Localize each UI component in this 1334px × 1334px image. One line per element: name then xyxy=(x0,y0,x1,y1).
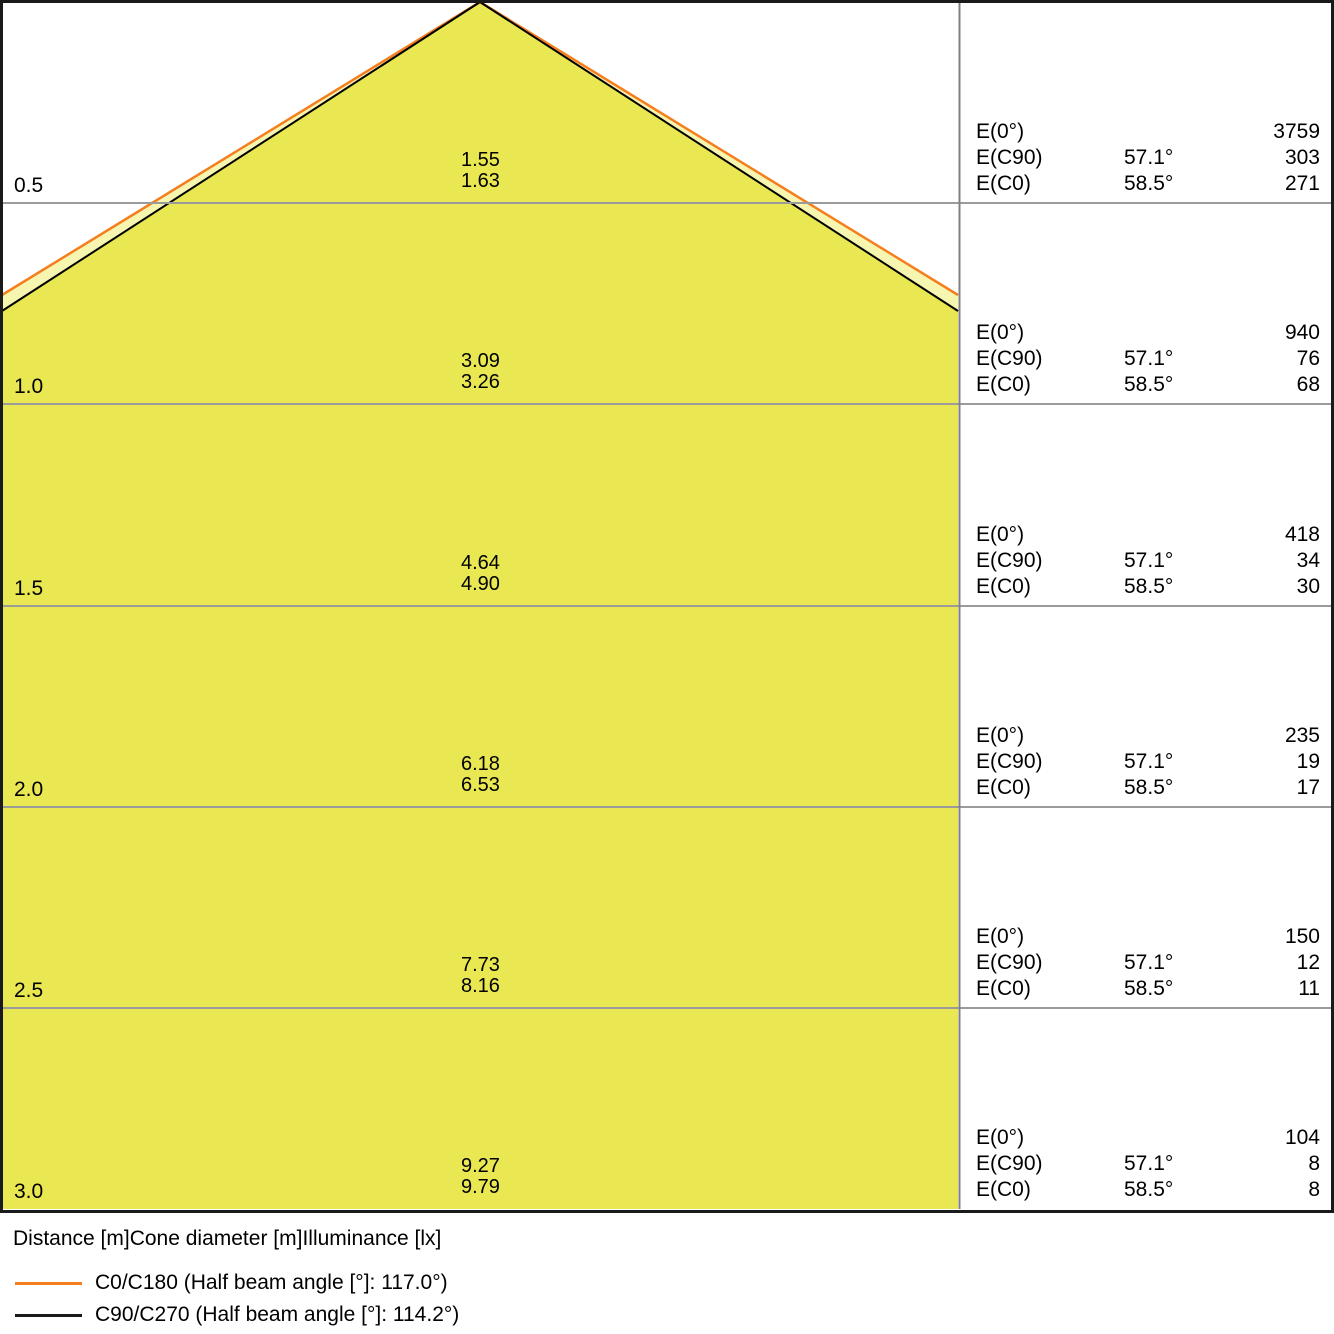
cone-diameter-labels: 9.27 9.79 xyxy=(461,1156,500,1198)
legend-label-c0-c180: C0/C180 (Half beam angle [°]: 117.0°) xyxy=(95,1270,448,1296)
ec0-label: E(C0) xyxy=(976,574,1124,600)
ec0-value: 30 xyxy=(1220,574,1320,600)
ec90-value: 76 xyxy=(1220,346,1320,372)
ec90-value: 8 xyxy=(1220,1151,1320,1177)
cone-diameter-labels: 1.55 1.63 xyxy=(461,150,500,192)
black-line-swatch-icon xyxy=(15,1314,82,1317)
e0-value: 3759 xyxy=(1220,119,1320,145)
distance-label: 2.0 xyxy=(14,777,43,803)
ec0-angle: 58.5° xyxy=(1124,976,1220,1002)
ec90-value: 19 xyxy=(1220,749,1320,775)
ec0-angle: 58.5° xyxy=(1124,372,1220,398)
distance-label: 0.5 xyxy=(14,173,43,199)
cone-diameter-c0: 4.90 xyxy=(461,574,500,595)
ec0-label: E(C0) xyxy=(976,171,1124,197)
distance-axis-label: Distance [m] xyxy=(13,1227,130,1250)
ec0-label: E(C0) xyxy=(976,372,1124,398)
legend-entry-c90-c270: C90/C270 (Half beam angle [°]: 114.2°) xyxy=(15,1302,459,1328)
ec90-value: 303 xyxy=(1220,145,1320,171)
legend-entry-c0-c180: C0/C180 (Half beam angle [°]: 117.0°) xyxy=(15,1270,448,1296)
orange-line-swatch-icon xyxy=(15,1282,82,1285)
illuminance-row: E(0°)235 E(C90)57.1°19 E(C0)58.5°17 xyxy=(976,723,1320,801)
cone-diameter-c90: 1.55 xyxy=(461,150,500,171)
ec90-angle: 57.1° xyxy=(1124,548,1220,574)
axis-labels: Distance [m]Cone diameter [m]Illuminance… xyxy=(13,1226,441,1251)
ec0-value: 11 xyxy=(1220,976,1320,1002)
e0-label: E(0°) xyxy=(976,924,1124,950)
illuminance-row: E(0°)150 E(C90)57.1°12 E(C0)58.5°11 xyxy=(976,924,1320,1002)
ec90-angle: 57.1° xyxy=(1124,1151,1220,1177)
cone-diameter-c0: 6.53 xyxy=(461,775,500,796)
legend-label-c90-c270: C90/C270 (Half beam angle [°]: 114.2°) xyxy=(95,1302,459,1328)
illuminance-row: E(0°)940 E(C90)57.1°76 E(C0)58.5°68 xyxy=(976,320,1320,398)
ec0-value: 8 xyxy=(1220,1177,1320,1203)
e0-value: 104 xyxy=(1220,1125,1320,1151)
ec90-label: E(C90) xyxy=(976,1151,1124,1177)
ec0-value: 271 xyxy=(1220,171,1320,197)
ec90-value: 34 xyxy=(1220,548,1320,574)
ec0-label: E(C0) xyxy=(976,775,1124,801)
e0-label: E(0°) xyxy=(976,1125,1124,1151)
distance-label: 3.0 xyxy=(14,1179,43,1205)
e0-angle xyxy=(1124,320,1220,346)
cone-diameter-c90: 7.73 xyxy=(461,955,500,976)
ec90-label: E(C90) xyxy=(976,346,1124,372)
cone-diameter-c0: 9.79 xyxy=(461,1177,500,1198)
ec0-label: E(C0) xyxy=(976,976,1124,1002)
distance-label: 1.5 xyxy=(14,576,43,602)
illuminance-row: E(0°)418 E(C90)57.1°34 E(C0)58.5°30 xyxy=(976,522,1320,600)
e0-value: 940 xyxy=(1220,320,1320,346)
cone-diameter-c90: 3.09 xyxy=(461,351,500,372)
e0-angle xyxy=(1124,924,1220,950)
e0-label: E(0°) xyxy=(976,522,1124,548)
e0-angle xyxy=(1124,1125,1220,1151)
ec90-label: E(C90) xyxy=(976,749,1124,775)
e0-label: E(0°) xyxy=(976,119,1124,145)
ec0-label: E(C0) xyxy=(976,1177,1124,1203)
ec90-label: E(C90) xyxy=(976,950,1124,976)
cone-diameter-labels: 7.73 8.16 xyxy=(461,955,500,997)
light-cone-diagram-page: 0.5 1.55 1.63 E(0°)3759 E(C90)57.1°303 E… xyxy=(0,0,1334,1334)
ec0-angle: 58.5° xyxy=(1124,171,1220,197)
cone-diameter-c0: 1.63 xyxy=(461,171,500,192)
cone-diameter-labels: 6.18 6.53 xyxy=(461,754,500,796)
cone-diameter-axis-label: Cone diameter [m] xyxy=(130,1227,303,1250)
cone-diameter-labels: 4.64 4.90 xyxy=(461,553,500,595)
cone-diameter-c90: 9.27 xyxy=(461,1156,500,1177)
cone-diameter-c90: 6.18 xyxy=(461,754,500,775)
ec0-angle: 58.5° xyxy=(1124,574,1220,600)
cone-diameter-c0: 8.16 xyxy=(461,976,500,997)
ec90-angle: 57.1° xyxy=(1124,145,1220,171)
ec0-angle: 58.5° xyxy=(1124,775,1220,801)
cone-diameter-c90: 4.64 xyxy=(461,553,500,574)
ec0-value: 17 xyxy=(1220,775,1320,801)
illuminance-axis-label: Illuminance [lx] xyxy=(302,1227,441,1250)
e0-label: E(0°) xyxy=(976,723,1124,749)
e0-angle xyxy=(1124,522,1220,548)
ec90-label: E(C90) xyxy=(976,548,1124,574)
distance-label: 2.5 xyxy=(14,978,43,1004)
ec0-angle: 58.5° xyxy=(1124,1177,1220,1203)
e0-value: 235 xyxy=(1220,723,1320,749)
ec90-angle: 57.1° xyxy=(1124,346,1220,372)
e0-angle xyxy=(1124,723,1220,749)
e0-label: E(0°) xyxy=(976,320,1124,346)
illuminance-row: E(0°)104 E(C90)57.1°8 E(C0)58.5°8 xyxy=(976,1125,1320,1203)
ec90-angle: 57.1° xyxy=(1124,749,1220,775)
cone-diagram-chart: 0.5 1.55 1.63 E(0°)3759 E(C90)57.1°303 E… xyxy=(0,0,1334,1213)
ec90-angle: 57.1° xyxy=(1124,950,1220,976)
ec0-value: 68 xyxy=(1220,372,1320,398)
ec90-value: 12 xyxy=(1220,950,1320,976)
ec90-label: E(C90) xyxy=(976,145,1124,171)
e0-value: 418 xyxy=(1220,522,1320,548)
cone-diameter-labels: 3.09 3.26 xyxy=(461,351,500,393)
e0-value: 150 xyxy=(1220,924,1320,950)
cone-diameter-c0: 3.26 xyxy=(461,372,500,393)
distance-label: 1.0 xyxy=(14,374,43,400)
e0-angle xyxy=(1124,119,1220,145)
illuminance-row: E(0°)3759 E(C90)57.1°303 E(C0)58.5°271 xyxy=(976,119,1320,197)
